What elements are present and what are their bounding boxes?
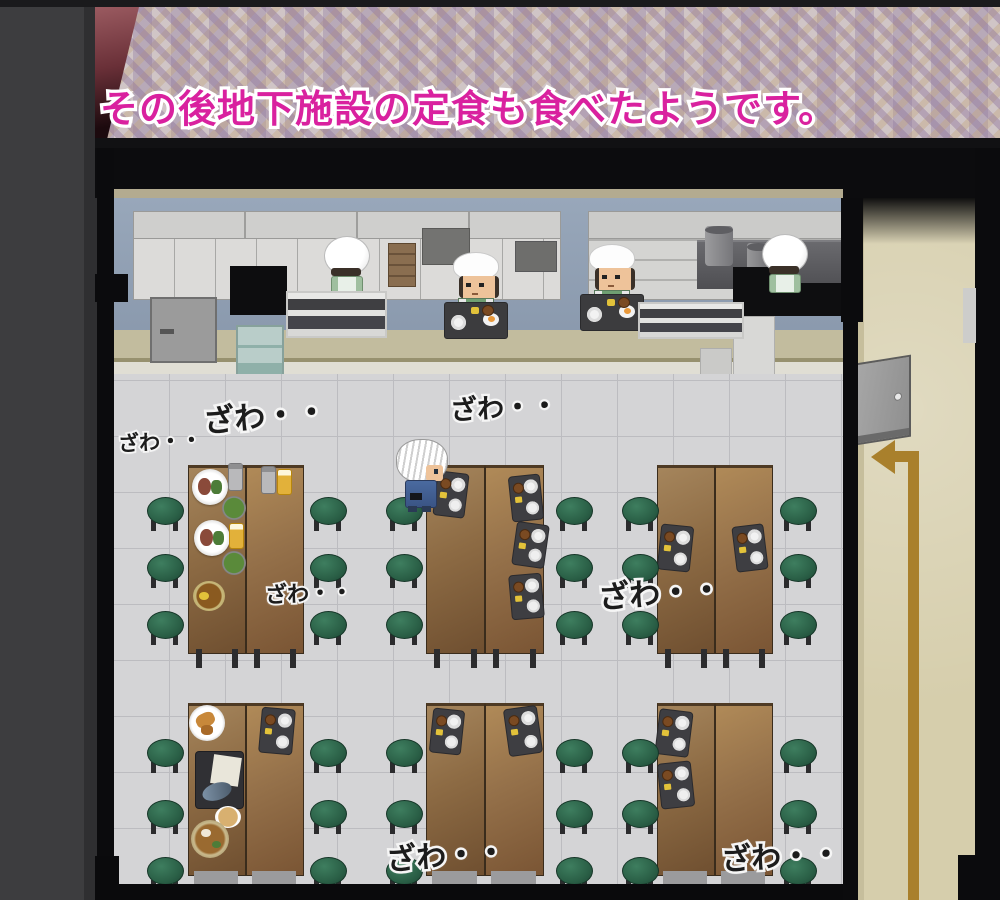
tray-item — [512, 482, 524, 494]
stool — [310, 739, 345, 773]
tray-item — [515, 595, 522, 602]
route-arrow-elbow — [893, 451, 919, 462]
room-wall-bottom — [95, 884, 843, 900]
stool — [147, 554, 182, 588]
tray-shelf-counter — [286, 291, 387, 338]
stool — [622, 497, 657, 531]
stool-seat — [780, 611, 817, 639]
stool-seat — [556, 857, 593, 885]
food-can — [262, 467, 275, 493]
corridor-divider-wall — [843, 320, 858, 900]
stool — [386, 800, 421, 834]
game-viewport[interactable]: ざわ・・ざわ・・ざわ・・ざわ・・ざわ・・ざわ・・ざわ・・ その後地下施設の定食も… — [0, 0, 1000, 900]
player-leg — [408, 506, 417, 512]
tray-item — [674, 715, 690, 731]
stool — [310, 497, 345, 531]
tray-item — [526, 599, 540, 613]
tray-item — [277, 713, 292, 728]
tray-item — [448, 498, 462, 512]
serving-tray — [444, 302, 508, 339]
tray-item — [736, 532, 748, 544]
tray-shelf-counter — [638, 302, 744, 339]
tray-item — [440, 492, 448, 499]
stool-seat — [147, 739, 184, 767]
chef-apron — [769, 274, 801, 293]
food-meal-plate — [194, 520, 230, 556]
tray-item — [672, 737, 686, 751]
stool-seat — [622, 857, 659, 885]
stool — [622, 739, 657, 773]
food-tray — [658, 761, 694, 808]
food-tray — [655, 709, 692, 757]
table-leg — [196, 649, 202, 668]
stool-seat — [780, 739, 817, 767]
tray-item — [515, 496, 523, 503]
top-edge-strip — [0, 0, 1000, 7]
stool-seat — [780, 800, 817, 828]
table-leg — [493, 649, 499, 668]
tray-item — [436, 729, 444, 736]
tray-item — [446, 714, 461, 729]
tray-item — [524, 734, 539, 749]
stool-seat — [622, 739, 659, 767]
kitchen-wall-highlight — [114, 189, 843, 198]
food-tray — [509, 475, 543, 522]
chef-eye — [479, 283, 484, 287]
stool — [310, 800, 345, 834]
food-noodles — [191, 820, 229, 858]
tray-item — [450, 477, 466, 493]
kitchen-door — [150, 297, 217, 363]
kitchen-pillar — [230, 266, 287, 315]
chef-mouth — [608, 285, 614, 287]
stool-seat — [780, 497, 817, 525]
chef-eye — [615, 275, 620, 279]
tray-item — [749, 551, 763, 565]
stool-seat — [310, 800, 347, 828]
chef-mouth — [472, 293, 478, 295]
chef-eye — [602, 275, 607, 279]
right-wall-panel — [963, 288, 976, 343]
chef-eye — [466, 283, 471, 287]
tray-item — [524, 578, 539, 593]
stool-seat — [556, 554, 593, 582]
ambient-murmur-text: ざわ・・ — [449, 383, 559, 428]
chef-hair — [769, 266, 799, 274]
stool — [780, 554, 815, 588]
tray-item — [436, 715, 448, 727]
room-wall-bottom-step — [95, 856, 119, 900]
stool-seat — [622, 497, 659, 525]
stool-seat — [310, 497, 347, 525]
food-tray — [430, 709, 464, 755]
stool-seat — [147, 611, 184, 639]
table-base-shadow — [194, 871, 238, 885]
table-leg — [701, 649, 707, 668]
stool — [310, 611, 345, 645]
stool — [147, 800, 182, 834]
stool — [780, 739, 815, 773]
tray-item — [525, 501, 539, 515]
tray-item — [511, 729, 519, 736]
stool-seat — [386, 800, 423, 828]
food-salad — [222, 496, 246, 520]
narration-text-content: その後地下施設の定食も食べたようです。 — [100, 89, 837, 131]
food-curry — [193, 581, 225, 611]
dining-table — [246, 465, 304, 654]
table-leg — [530, 649, 536, 668]
chef-face — [459, 276, 499, 298]
stool — [386, 611, 421, 645]
tray-item — [739, 547, 747, 554]
tray-item — [747, 529, 763, 545]
stool — [386, 739, 421, 773]
stool — [147, 739, 182, 773]
food-tray — [512, 522, 549, 568]
tray-item — [513, 581, 525, 593]
food-tray — [658, 525, 693, 572]
tray-item — [508, 714, 520, 726]
food-beer — [230, 524, 243, 548]
chef-face — [595, 268, 635, 290]
ambient-murmur-text: ざわ・・ — [385, 827, 508, 879]
tray-item — [664, 784, 672, 791]
food-tray — [504, 706, 542, 756]
stool-seat — [556, 611, 593, 639]
serving-tray — [580, 294, 644, 331]
tray-item — [675, 530, 690, 545]
tray-item — [482, 305, 494, 316]
ambient-murmur-text: ざわ・・ — [720, 829, 842, 879]
room-wall-left — [97, 148, 114, 900]
food-tray — [732, 524, 767, 571]
tray-item — [518, 542, 526, 549]
table-base-shadow — [252, 871, 296, 885]
stool-seat — [780, 554, 817, 582]
table-leg — [290, 649, 296, 668]
table-leg — [434, 649, 440, 668]
player-belt — [410, 493, 422, 500]
ambient-murmur-text: ざわ・・ — [117, 424, 202, 458]
stool-seat — [147, 497, 184, 525]
tray-item — [674, 766, 689, 781]
stool-seat — [556, 497, 593, 525]
right-wall-pillar — [958, 855, 1000, 900]
wall-vent — [515, 241, 557, 272]
stool-seat — [386, 611, 423, 639]
stool-seat — [310, 857, 347, 885]
stool — [556, 800, 591, 834]
tray-item — [528, 548, 543, 563]
table-leg — [759, 649, 765, 668]
tray-item — [520, 710, 536, 726]
cooking-pot — [705, 226, 733, 266]
stool-seat — [310, 611, 347, 639]
room-wall-right — [975, 148, 1000, 900]
food-fish-tray — [196, 752, 243, 808]
route-arrow-head — [871, 440, 895, 474]
stool — [622, 800, 657, 834]
ambient-murmur-text: ざわ・・ — [264, 574, 353, 609]
stool-seat — [147, 554, 184, 582]
stool — [556, 611, 591, 645]
stool-seat — [147, 857, 184, 885]
stool — [147, 497, 182, 531]
route-arrow-shaft — [908, 451, 919, 900]
food-can — [229, 464, 242, 490]
stool — [556, 739, 591, 773]
stool — [622, 611, 657, 645]
tray-item — [276, 735, 290, 749]
table-leg — [471, 649, 477, 668]
table-base-shadow — [663, 871, 707, 885]
food-tray — [259, 708, 295, 755]
player-leg — [422, 506, 431, 512]
stacked-crates — [388, 243, 416, 287]
tray-item — [661, 769, 673, 781]
table-leg — [232, 649, 238, 668]
stool — [556, 497, 591, 531]
tray-item — [523, 479, 538, 494]
stool-seat — [556, 739, 593, 767]
stool-seat — [386, 739, 423, 767]
food-tray — [509, 574, 544, 620]
table-leg — [723, 649, 729, 668]
player-eye — [434, 469, 438, 474]
tray-item — [471, 307, 479, 314]
tray-item — [264, 714, 276, 726]
tray-item — [265, 728, 272, 735]
food-beer — [278, 470, 291, 494]
stool — [780, 497, 815, 531]
tray-item — [664, 545, 672, 552]
tray-item — [662, 716, 674, 728]
tray-item — [624, 308, 631, 314]
stool — [780, 611, 815, 645]
stool-seat — [622, 800, 659, 828]
corridor-divider-wall-top — [841, 198, 863, 322]
tray-item — [607, 299, 615, 306]
stool — [386, 554, 421, 588]
food-meal-plate — [192, 469, 228, 505]
tray-item — [676, 788, 690, 802]
tray-item — [444, 735, 458, 749]
offscreen-wall-left — [0, 0, 97, 900]
stool-seat — [147, 800, 184, 828]
tray-item — [488, 316, 495, 322]
food-tempura — [189, 705, 225, 741]
stool-seat — [556, 800, 593, 828]
tray-item — [618, 297, 630, 308]
stool-seat — [310, 739, 347, 767]
food-salad — [222, 551, 246, 575]
narration-text: その後地下施設の定食も食べたようです。 — [100, 78, 900, 133]
table-leg — [254, 649, 260, 668]
chef-hair — [331, 268, 361, 276]
room-wall-left-pillar — [95, 274, 128, 302]
table-leg — [665, 649, 671, 668]
tray-item — [519, 528, 531, 540]
tray-item — [587, 307, 602, 322]
tray-item — [664, 531, 676, 543]
table-base-shadow — [491, 871, 536, 885]
tray-item — [451, 315, 466, 330]
tray-item — [530, 528, 546, 544]
stool — [780, 800, 815, 834]
tray-item — [673, 552, 687, 566]
stool — [147, 611, 182, 645]
kitchen-cabinets-upper-left — [133, 211, 561, 239]
tray-item — [662, 730, 670, 737]
ambient-murmur-text: ざわ・・ — [597, 564, 724, 618]
stool-seat — [386, 554, 423, 582]
stool — [556, 554, 591, 588]
